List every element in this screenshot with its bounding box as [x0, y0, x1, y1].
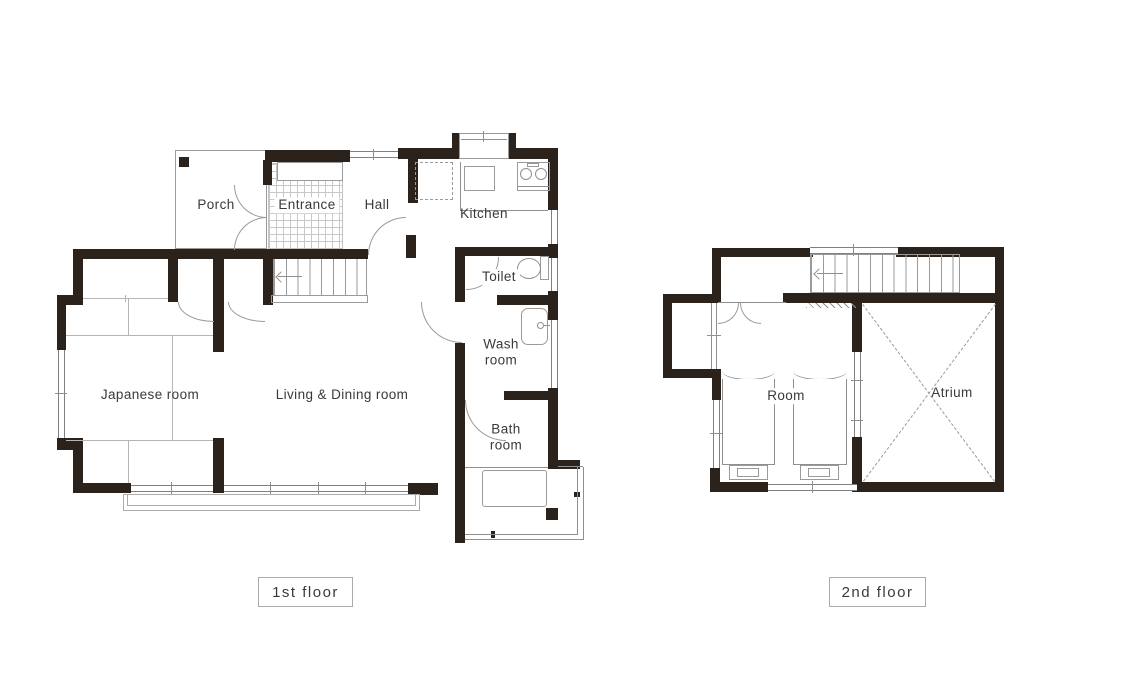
window — [350, 151, 398, 158]
bed-foot-inner — [737, 468, 759, 477]
deck-edge — [465, 534, 578, 535]
room-label-wash-room: Wash room — [483, 336, 519, 367]
window — [131, 485, 213, 492]
room-label-entrance: Entrance — [274, 197, 339, 213]
wall-segment — [710, 468, 720, 492]
wall-segment — [857, 482, 1004, 492]
wall-segment — [455, 247, 465, 302]
washbasin-tick — [544, 325, 550, 326]
deck-post — [546, 508, 558, 520]
window-tick — [851, 420, 863, 421]
room-door-arc — [740, 303, 761, 324]
window-tick — [710, 433, 722, 434]
window — [810, 247, 898, 254]
wall-segment — [168, 249, 178, 302]
washbasin-faucet — [537, 322, 544, 329]
stair-rail-hatch — [806, 303, 856, 308]
closet-sliding-door — [716, 303, 717, 369]
closet-sliding-door — [711, 303, 712, 369]
window-tick — [55, 393, 67, 394]
window-tick — [851, 380, 863, 381]
room-label-room: Room — [763, 388, 809, 404]
wall-segment — [712, 369, 721, 400]
wall-segment — [548, 388, 558, 468]
room-label-hall: Hall — [365, 197, 390, 213]
room-label-porch: Porch — [197, 197, 234, 213]
room-label-toilet: Toilet — [478, 269, 520, 285]
stove-burner — [535, 168, 547, 180]
second-floor-caption-text: 2nd floor — [842, 584, 914, 601]
deck-edge — [465, 539, 584, 540]
tatami-line — [128, 299, 129, 335]
wall-segment — [783, 293, 1004, 303]
wall-segment — [265, 150, 350, 162]
wall-segment — [455, 247, 558, 256]
window — [551, 210, 558, 244]
closet-door-arc — [178, 302, 214, 322]
wall-segment — [57, 303, 66, 350]
window — [58, 350, 65, 438]
closet-door-tick — [707, 335, 721, 336]
wall-segment — [548, 460, 580, 469]
porch-post — [179, 157, 189, 167]
room-label-bath-room: Bath room — [490, 421, 522, 452]
window — [551, 258, 558, 291]
room-door-arc — [718, 303, 739, 324]
shoe-cabinet — [277, 162, 343, 181]
wall-segment — [213, 249, 224, 352]
window-tick — [373, 149, 374, 160]
toilet-tank — [540, 256, 549, 280]
wall-segment — [663, 294, 672, 378]
first-floor-caption-text: 1st floor — [272, 584, 339, 601]
refrigerator-space — [415, 162, 453, 200]
wall-segment — [213, 438, 224, 493]
floor-plan-stage: Porch Entrance Hall Kitchen Toilet Wash … — [0, 0, 1135, 692]
hall-door-arc — [368, 217, 406, 255]
stove-grill — [527, 163, 539, 167]
closet-door-arc — [228, 302, 265, 322]
window-tick — [812, 481, 813, 493]
toilet-bowl — [517, 258, 541, 279]
deck-edge — [577, 467, 578, 535]
counter-edge — [460, 162, 461, 210]
wall-segment — [73, 483, 131, 493]
washroom-door-arc — [421, 302, 462, 343]
stove-controls — [518, 186, 549, 187]
room-label-living-dining: Living & Dining room — [276, 387, 409, 403]
room-label-atrium: Atrium — [931, 385, 972, 401]
staircase — [273, 259, 367, 296]
stair-rail — [271, 295, 368, 303]
tatami-line — [128, 440, 129, 483]
washbasin-icon — [521, 308, 548, 345]
window — [854, 352, 861, 437]
kitchen-bay-window — [459, 133, 509, 159]
alcove-tick — [125, 295, 126, 302]
wall-segment — [263, 160, 272, 185]
window-tick — [365, 482, 366, 494]
deck-edge — [583, 467, 584, 540]
window-tick — [270, 482, 271, 494]
room-label-kitchen: Kitchen — [460, 206, 508, 222]
veranda-deck-inner — [127, 494, 416, 506]
wall-segment — [712, 248, 813, 257]
wall-segment — [504, 391, 558, 400]
wall-segment — [406, 235, 416, 258]
deck-edge — [558, 466, 583, 467]
wall-segment — [455, 343, 465, 543]
kitchen-sink — [464, 166, 495, 191]
tatami-line — [66, 335, 213, 336]
first-floor-caption: 1st floor — [258, 577, 353, 607]
wall-segment — [852, 302, 862, 352]
second-floor-caption: 2nd floor — [829, 577, 926, 607]
tatami-line — [66, 440, 213, 441]
window-tick — [318, 482, 319, 494]
wall-segment — [497, 295, 558, 305]
bathtub-icon — [482, 470, 547, 507]
wall-segment — [995, 247, 1004, 492]
window-tick — [483, 131, 484, 142]
bath-platform-line — [465, 467, 548, 468]
room-label-japanese-room: Japanese room — [101, 387, 199, 403]
window — [713, 400, 720, 468]
window-line — [461, 139, 507, 140]
bed-foot-inner — [808, 468, 830, 477]
wall-segment — [73, 249, 83, 295]
stove-burner — [520, 168, 532, 180]
window — [224, 485, 408, 492]
window — [551, 320, 558, 388]
window-tick — [171, 482, 172, 494]
